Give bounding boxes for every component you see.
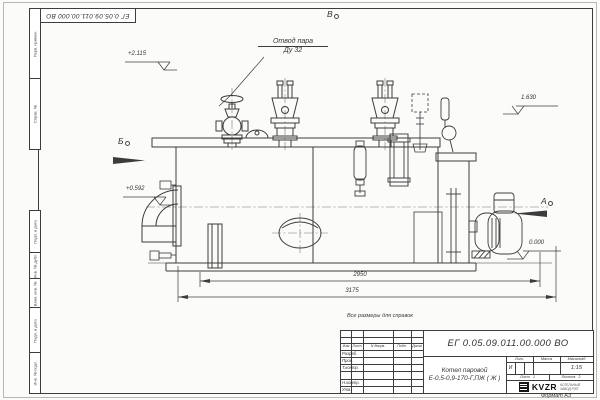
- format-label: Формат А3: [520, 393, 592, 399]
- dimension-label-2950: 2950: [344, 272, 376, 278]
- elevation-label-1630: 1.630: [521, 95, 536, 101]
- support-column-right: [446, 188, 461, 263]
- tb-line: [524, 362, 525, 374]
- view-letter: А: [541, 196, 547, 206]
- tb-row-razrab: Разраб.: [342, 350, 363, 357]
- view-letter: В: [327, 9, 333, 19]
- tb-line: [341, 337, 423, 338]
- tb-scale-value: 1:15: [560, 362, 593, 374]
- sheets-label: Листов: [562, 375, 576, 379]
- elevation-symbols: [123, 62, 561, 259]
- burner-elbow: [142, 186, 181, 246]
- dimension-2950: [200, 252, 540, 287]
- view-label-left: Б: [118, 136, 130, 146]
- view-subscript-icon: [334, 14, 339, 19]
- tb-line: [363, 331, 364, 393]
- dimension-label-3175: 3175: [336, 288, 368, 294]
- title-block: Изм Лист N докум. Подп. Дата Разраб. Про…: [340, 330, 594, 394]
- tb-lit-value: И: [506, 362, 515, 374]
- phantom-sensor: [412, 94, 428, 152]
- product-name-line2: Е-0,5-0,9-170-Г,ПЖ ( Ж ): [429, 375, 501, 383]
- leader-line: [219, 57, 264, 106]
- tb-col-doc: N докум.: [363, 343, 393, 350]
- tb-product-name: Котел паровой Е-0,5-0,9-170-Г,ПЖ ( Ж ): [423, 356, 506, 393]
- sheet-value: 1: [533, 375, 535, 379]
- elevation-label-0000: 0.000: [529, 240, 544, 246]
- kvzr-logo-text: KVZR: [532, 382, 557, 392]
- view-letter: Б: [118, 136, 124, 146]
- product-name-line1: Котел паровой: [442, 367, 488, 375]
- tb-row-blank: [342, 371, 363, 378]
- elevation-label-2115: +2.115: [128, 51, 146, 57]
- tb-line: [515, 362, 516, 374]
- level-gauge-column: [388, 134, 410, 186]
- view-arrows: [113, 157, 547, 217]
- leader-line1: Отвод пара: [258, 38, 328, 47]
- kvzr-sub-line2: ЗАВОД РЭП: [560, 387, 578, 391]
- view-label-top: В: [327, 9, 339, 19]
- dome: [246, 130, 268, 138]
- sheet-label: Лист: [520, 375, 530, 379]
- sheets-value: 2: [578, 375, 580, 379]
- elevation-label-0592: +0.592: [126, 186, 145, 192]
- kvzr-sub-text: КОТЕЛЬНЫЙ ЗАВОД РЭП: [560, 383, 580, 391]
- leader-steam-outlet: Отвод пара Ду 32: [258, 38, 328, 54]
- tb-row-tkontr: Т.контр.: [342, 364, 363, 371]
- support-leg-left: [208, 224, 222, 268]
- tb-col-date: Дата: [411, 343, 423, 350]
- tb-designation: ЕГ 0.05.09.011.00.000 ВО: [423, 331, 593, 356]
- cable-pipe: [441, 98, 456, 152]
- view-subscript-icon: [548, 201, 553, 206]
- tb-row-nkontr: Н.контр.: [342, 379, 363, 386]
- reference-note: Все размеры для справок: [347, 313, 413, 319]
- leader-line2: Ду 32: [258, 47, 328, 54]
- kvzr-logo-icon: [519, 382, 529, 392]
- view-label-right: А: [541, 196, 553, 206]
- drawing-sheet: Перв. примен. Справ. № Подп. и дата Инв.…: [0, 0, 600, 400]
- tb-line: [411, 331, 412, 393]
- tb-col-sign: Подп.: [393, 343, 411, 350]
- view-subscript-icon: [125, 141, 130, 146]
- tb-line: [393, 331, 394, 393]
- boiler-shell: [148, 138, 552, 271]
- feed-pump: [469, 193, 522, 258]
- tb-mass-header: Масса: [533, 356, 560, 362]
- tb-row-utv: Утв.: [342, 386, 363, 393]
- level-gauge-glass: [354, 141, 366, 196]
- tb-row-prov: Пров.: [342, 357, 363, 364]
- tb-company-cell: KVZR КОТЕЛЬНЫЙ ЗАВОД РЭП: [506, 380, 593, 393]
